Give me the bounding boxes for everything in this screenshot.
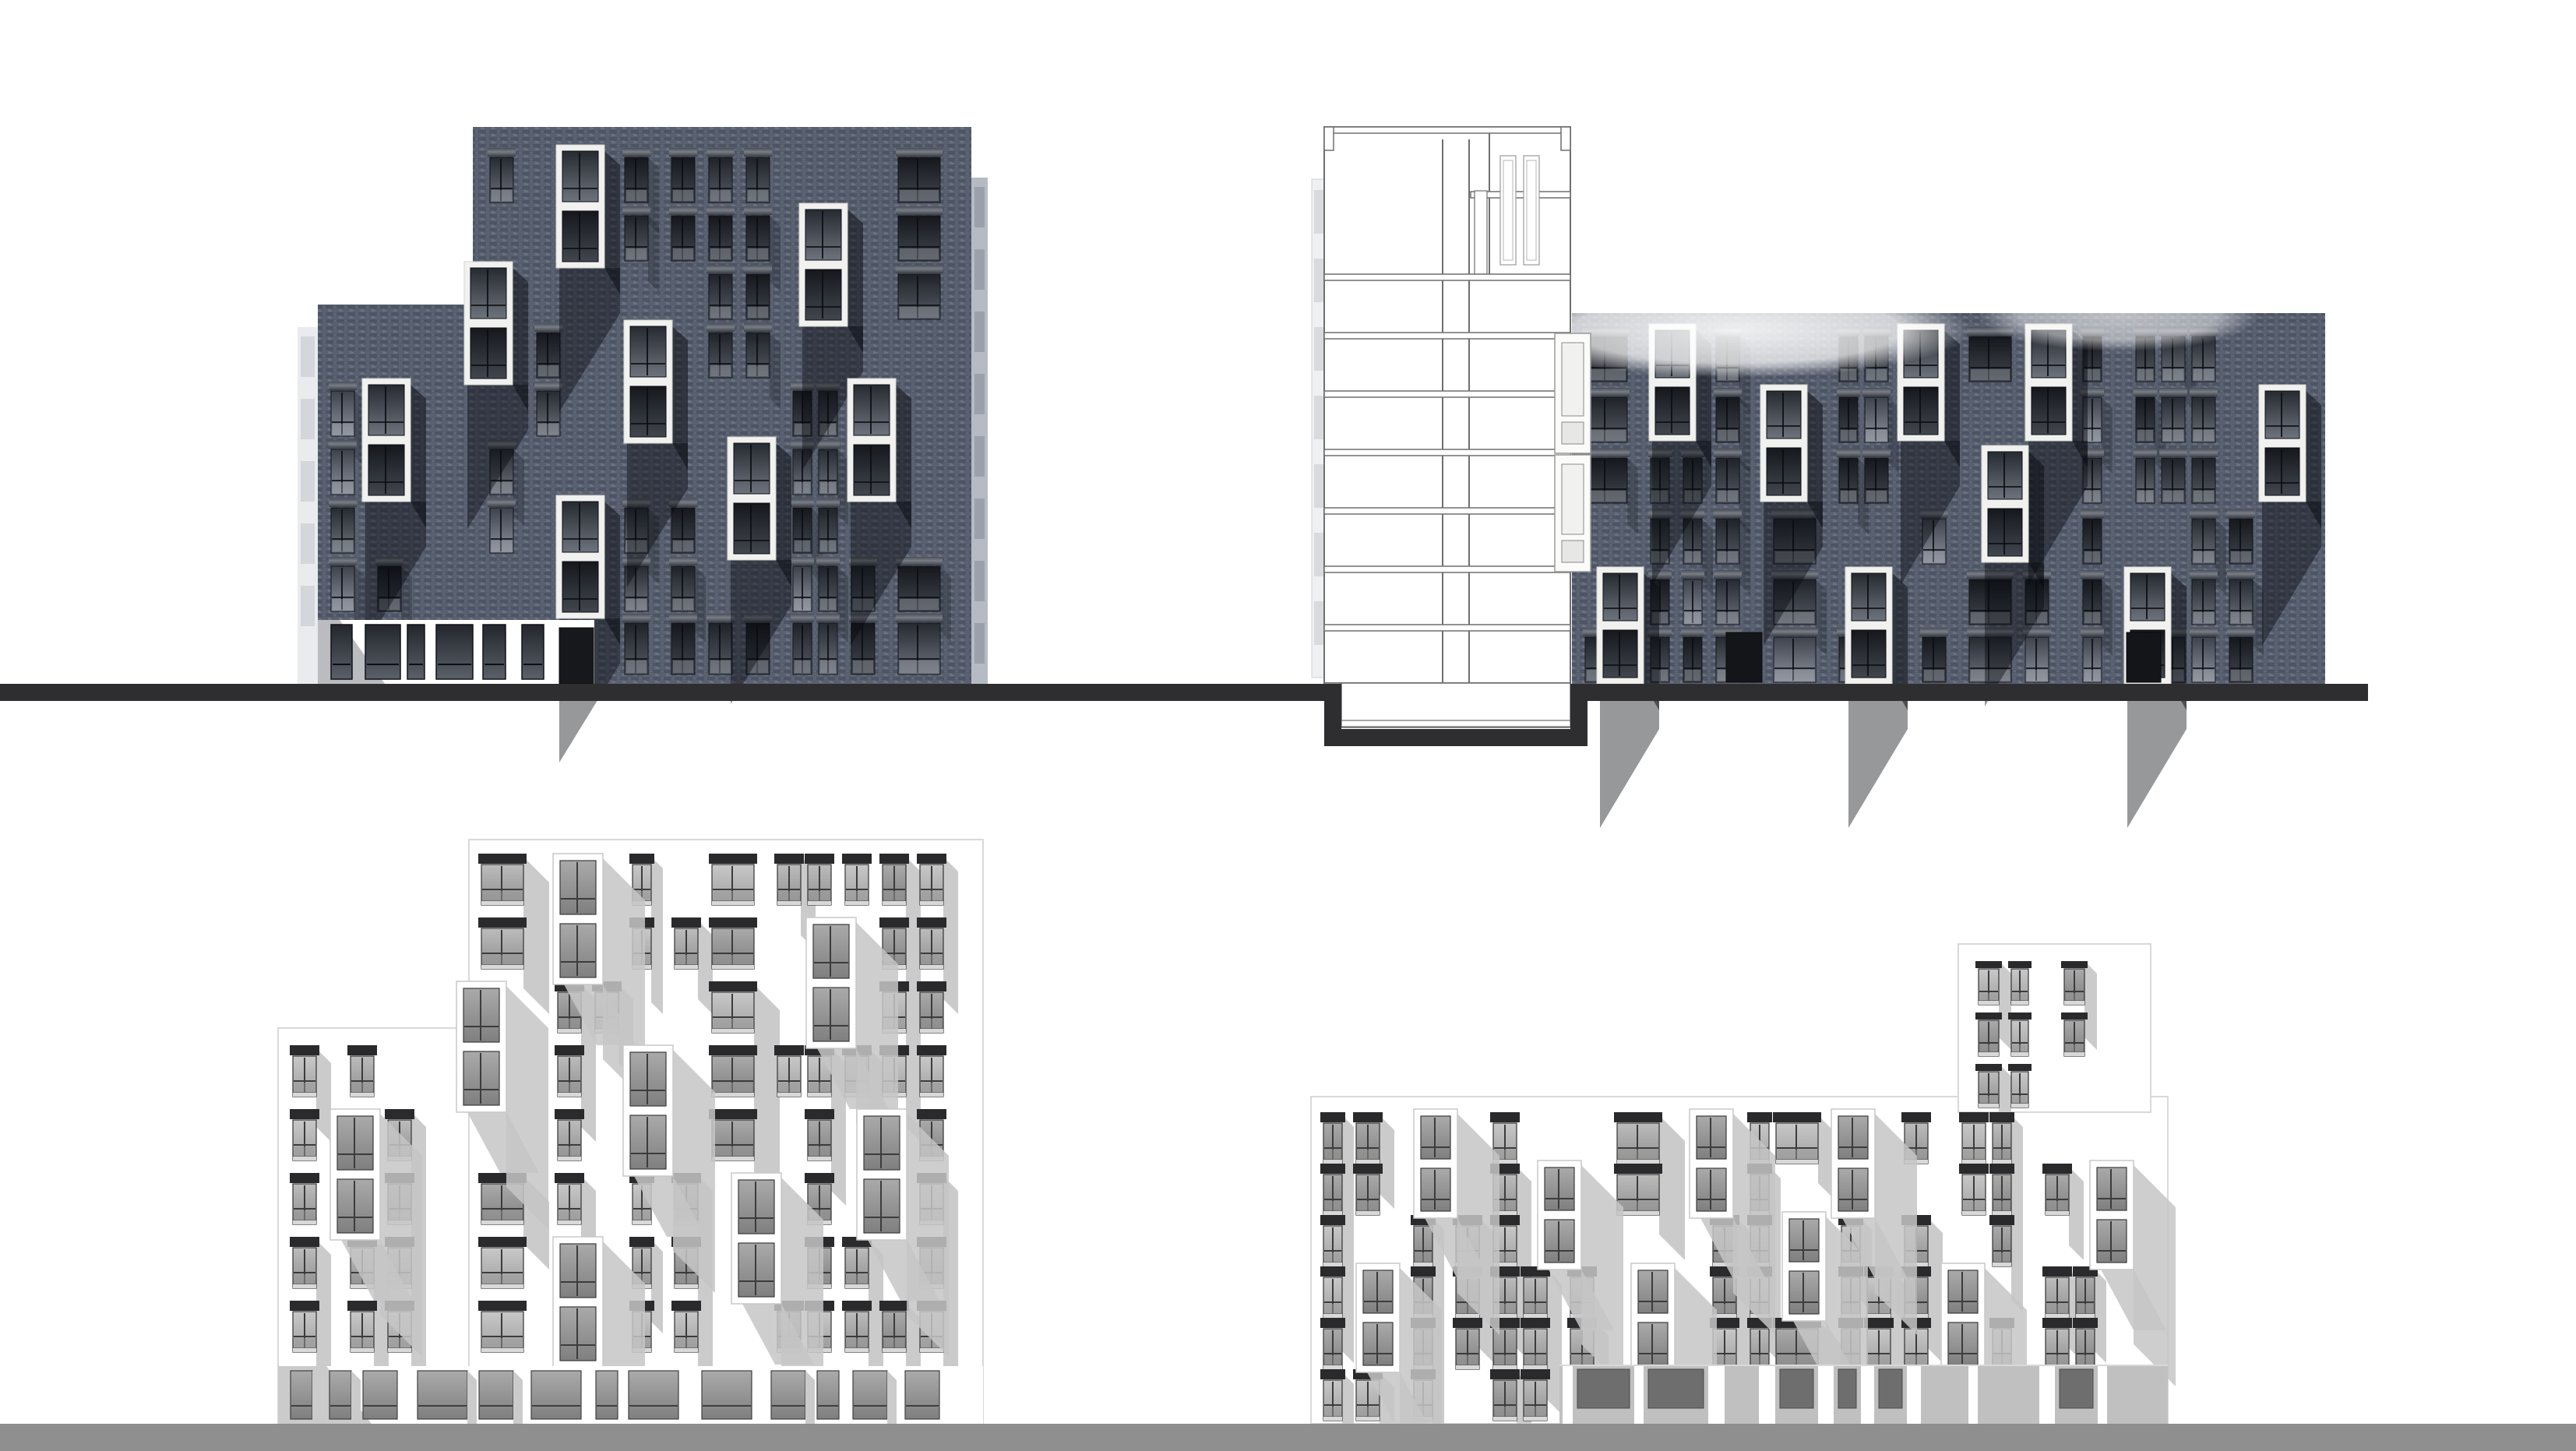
elevation-sheet-canvas [0,0,2576,1451]
section-cut [1312,127,1591,689]
elevation-ne [1572,313,2325,828]
site-strip [0,1424,2576,1451]
elevation-nw [298,127,988,762]
elevation-sw [278,840,983,1451]
elevation-sheet [0,0,2576,1451]
elevation-se [1311,944,2176,1451]
ground-line [0,683,2368,746]
